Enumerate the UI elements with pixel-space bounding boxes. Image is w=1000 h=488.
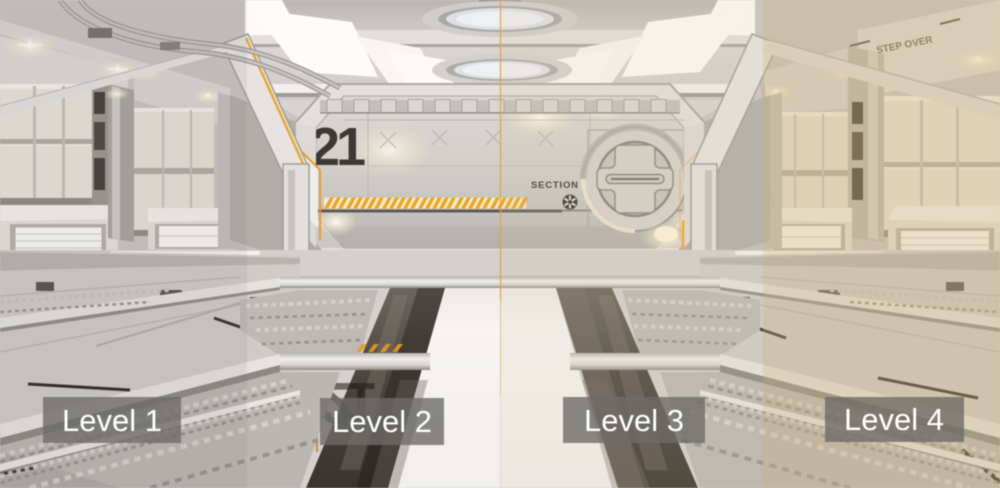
svg-text:Level 3: Level 3: [584, 403, 684, 438]
svg-text:Level 4: Level 4: [844, 402, 944, 437]
svg-text:Level 1: Level 1: [62, 403, 162, 438]
svg-text:Level 2: Level 2: [332, 404, 432, 439]
